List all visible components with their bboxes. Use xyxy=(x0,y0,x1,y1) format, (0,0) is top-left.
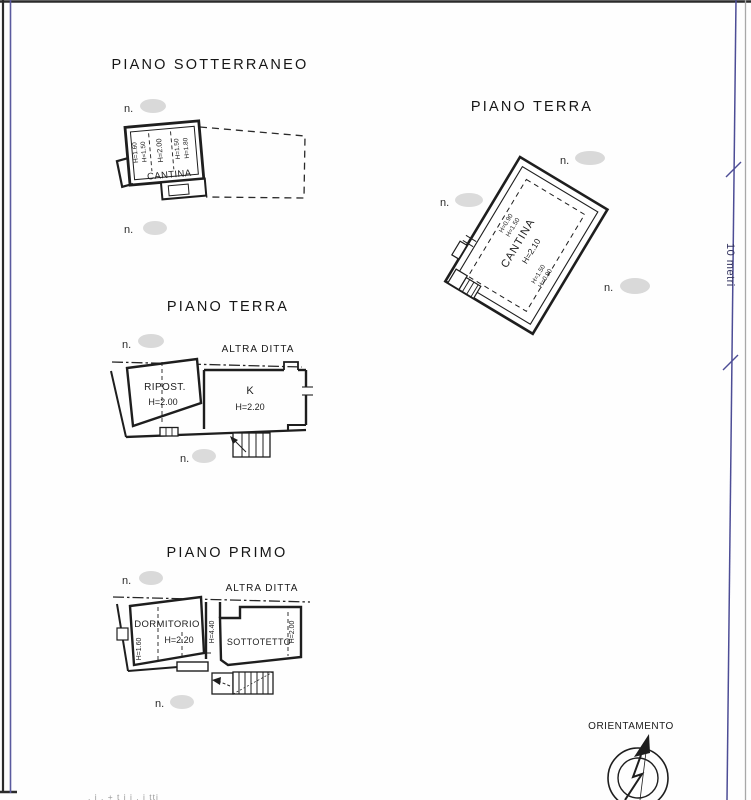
page-border xyxy=(0,0,751,800)
plan-piano-sotterraneo: PIANO SOTTERRANEO n. H=1.60 H=1.50 H=2.0… xyxy=(112,57,309,236)
parcel-number-label: n. xyxy=(124,103,133,115)
height-label: H=2.20 xyxy=(164,635,193,645)
redaction-blob xyxy=(139,571,163,585)
boundary-label: ALTRA DITTA xyxy=(222,344,295,355)
plan-title: PIANO TERRA xyxy=(167,299,289,315)
illegible-footer-text: . i . + t i i . i tti xyxy=(88,792,159,800)
redaction-blob xyxy=(170,695,194,709)
parcel-number-label: n. xyxy=(180,453,189,465)
floorplan-drawing: 10 metri PIANO SOTTERRANEO n. H=1.60 H=1… xyxy=(0,0,751,800)
plan-title: PIANO PRIMO xyxy=(167,545,288,561)
parcel-number-label: n. xyxy=(122,575,131,587)
redaction-blob xyxy=(575,151,605,165)
room-label: K xyxy=(246,385,254,397)
building-outline: RIPOST. H=2.00 K H=2.20 xyxy=(111,359,313,457)
stairs-icon xyxy=(230,433,270,457)
parcel-number-label: n. xyxy=(440,197,449,209)
plan-title: PIANO SOTTERRANEO xyxy=(112,57,309,73)
height-label: H=2.00 xyxy=(148,397,177,407)
window xyxy=(117,628,128,640)
building-outline: CANTINA H=2.10 H=0.90 H=1.50 H=1.50 H=0.… xyxy=(438,153,607,334)
parcel-number-label: n. xyxy=(124,224,133,236)
room-label: RIPOST. xyxy=(144,382,186,393)
courtyard-dashed-outline xyxy=(200,127,305,198)
scale-tick-bottom xyxy=(723,355,738,370)
plan-piano-terra-left: PIANO TERRA n. ALTRA DITTA RIPOST. H=2.0… xyxy=(111,299,313,465)
redaction-blob xyxy=(143,221,167,235)
compass: ORIENTAMENTO xyxy=(588,721,674,800)
parcel-number-label: n. xyxy=(122,339,131,351)
building-outline: H=1.60 H=1.50 H=2.00 H=1.50 H=1.80 CANTI… xyxy=(114,121,206,203)
plan-piano-terra-right: PIANO TERRA n. n. n. CANTINA H=2.10 H=0.… xyxy=(438,99,650,334)
chimney-niche xyxy=(284,362,298,370)
scale-label: 10 metri xyxy=(724,243,736,287)
redaction-blob xyxy=(138,334,164,348)
height-label: H=2.20 xyxy=(235,402,264,412)
room-label: DORMITORIO xyxy=(134,619,200,630)
height-label: H=2.00 xyxy=(289,621,296,644)
cadastral-floorplan-sheet: 10 metri PIANO SOTTERRANEO n. H=1.60 H=1… xyxy=(0,0,751,800)
boundary-label: ALTRA DITTA xyxy=(226,583,299,594)
redaction-blob xyxy=(455,193,483,207)
redaction-blob xyxy=(620,278,650,294)
north-arrow-icon xyxy=(625,734,650,800)
compass-label: ORIENTAMENTO xyxy=(588,721,674,732)
room-label: SOTTOTETTO xyxy=(227,637,291,647)
redaction-blob xyxy=(192,449,216,463)
plan-title: PIANO TERRA xyxy=(471,99,593,115)
boundary-dashdot-line xyxy=(113,597,310,602)
height-label: H=1.60 xyxy=(136,638,143,661)
height-label: H=4.40 xyxy=(209,621,216,644)
stairs-icon xyxy=(212,672,273,694)
parcel-number-label: n. xyxy=(604,282,613,294)
building-outline: DORMITORIO H=2.20 H=1.60 H=4.40 SOTTOTET… xyxy=(117,597,301,694)
redaction-blob xyxy=(140,99,166,113)
scale-bar: 10 metri xyxy=(723,0,741,800)
plan-piano-primo: PIANO PRIMO n. ALTRA DITTA DORMITORIO H=… xyxy=(113,545,310,710)
parcel-number-label: n. xyxy=(155,698,164,710)
parcel-number-label: n. xyxy=(560,155,569,167)
